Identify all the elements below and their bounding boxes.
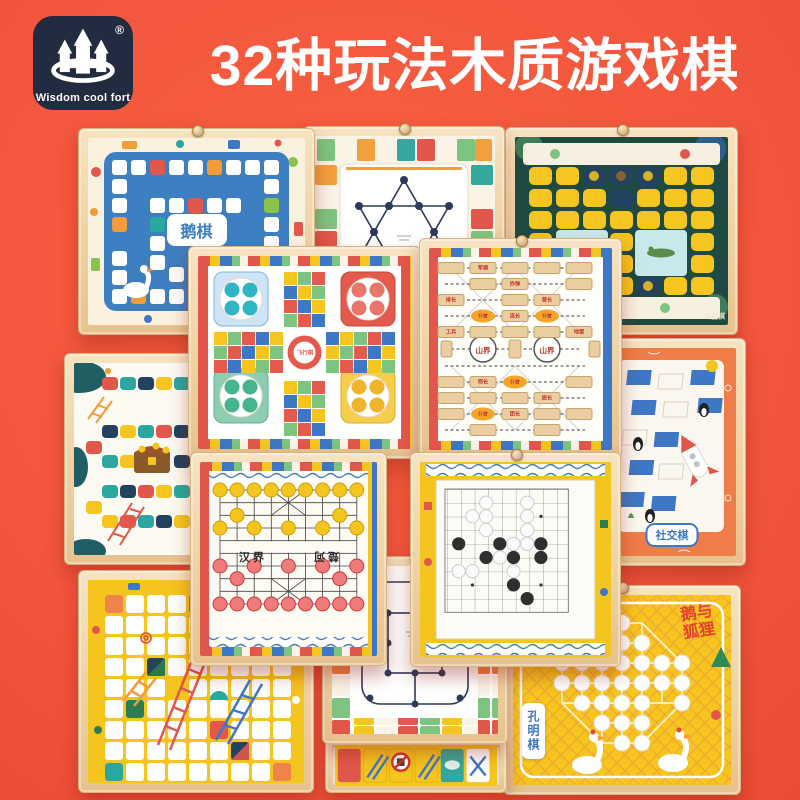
- peg-solitaire-label: 孔明棋: [522, 703, 545, 759]
- hanging-pin: [617, 124, 629, 136]
- piece-label: 旅长: [537, 394, 557, 402]
- flying-chess-label: 飞行棋: [293, 348, 318, 356]
- board-go: [410, 452, 621, 667]
- piece-label: 军旗: [473, 264, 493, 272]
- piece-label: 工兵: [441, 328, 461, 336]
- hanging-pin: [511, 449, 523, 461]
- mountain-label: 山界: [536, 344, 559, 355]
- social-chess-label: 社交棋: [646, 523, 699, 547]
- piece-label: 炸弹: [505, 280, 525, 288]
- piece-label: 连长: [505, 312, 525, 320]
- page-title: 32种玩法木质游戏棋: [152, 26, 797, 106]
- castle-icon: [43, 24, 123, 86]
- river-label-right: 楚河: [300, 549, 350, 565]
- river-label-left: 汉界: [228, 549, 278, 565]
- goose-game-label: 鹅棋: [166, 214, 226, 246]
- stacked-box-edge: [325, 738, 507, 793]
- piece-label: 排长: [441, 296, 461, 304]
- go-board-art: [420, 462, 611, 657]
- piece-label: 师长: [473, 378, 493, 386]
- product-image: ® Wisdom cool fort 32种玩法木质游戏棋: [0, 0, 800, 800]
- piece-label: 营长: [537, 296, 557, 304]
- chinese-chess-art: [200, 462, 377, 656]
- board-flying-chess: 飞行棋: [188, 246, 421, 459]
- prohibition-icon: [392, 754, 409, 771]
- board-chinese-chess: 汉界 楚河: [190, 452, 387, 666]
- brand-logo: ® Wisdom cool fort: [33, 16, 133, 110]
- mushroom-icon: [711, 710, 721, 720]
- treasure-chest-icon: [134, 443, 170, 474]
- box-edge-tiles: [332, 745, 500, 786]
- animal-chess-label: 斗兽棋: [705, 311, 725, 321]
- camp-label: 行营: [539, 312, 555, 319]
- piece-label: 地雷: [569, 328, 589, 336]
- military-chess-art: [429, 248, 612, 450]
- board-military-chess: 军旗 炸弹 排长 营长 连长 工兵 地雷 师长 旅长 团长 行营 行营 行营 行…: [419, 238, 622, 460]
- piece-label: 团长: [505, 410, 525, 418]
- camp-label: 行营: [475, 410, 491, 417]
- registered-mark: ®: [115, 23, 124, 37]
- fox-goose-label: 鹅与狐狸: [675, 602, 722, 644]
- hanging-pin: [399, 123, 411, 135]
- hanging-pin: [516, 235, 528, 247]
- hanging-pin: [192, 125, 204, 137]
- sun-icon: [706, 360, 718, 372]
- brand-name: Wisdom cool fort: [33, 92, 133, 104]
- camp-label: 行营: [475, 312, 491, 319]
- camp-label: 行营: [507, 378, 523, 385]
- mountain-label: 山界: [472, 344, 495, 355]
